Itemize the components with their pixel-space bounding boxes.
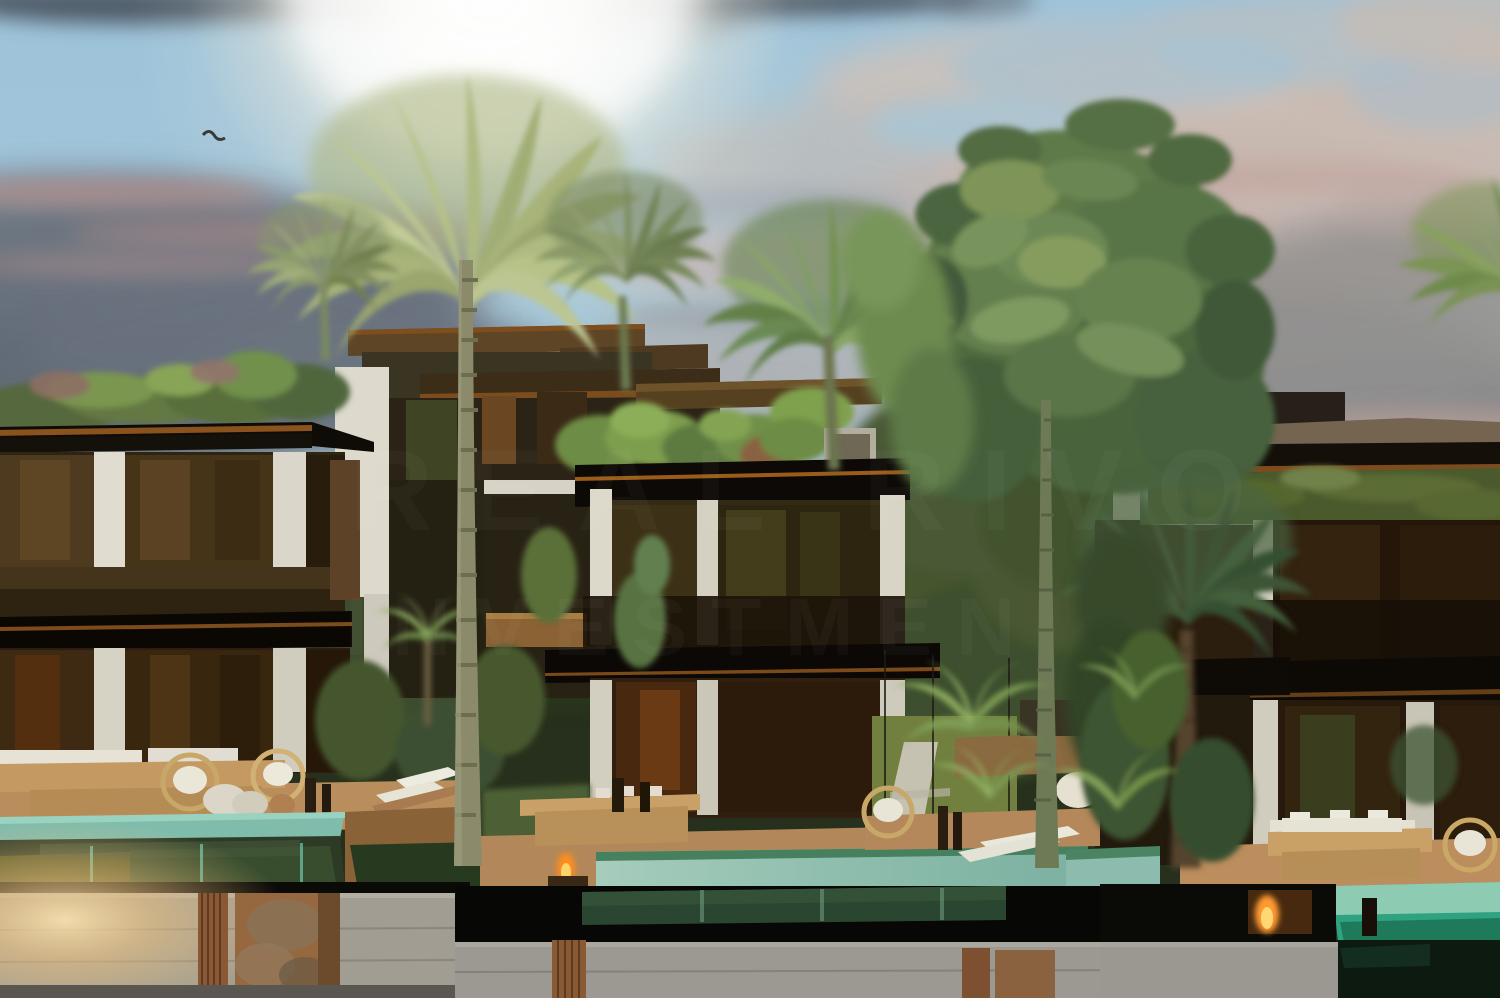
svg-text:REAL RIVO: REAL RIVO [350, 427, 1280, 555]
svg-text:INVESTMEN: INVESTMEN [345, 582, 1039, 673]
